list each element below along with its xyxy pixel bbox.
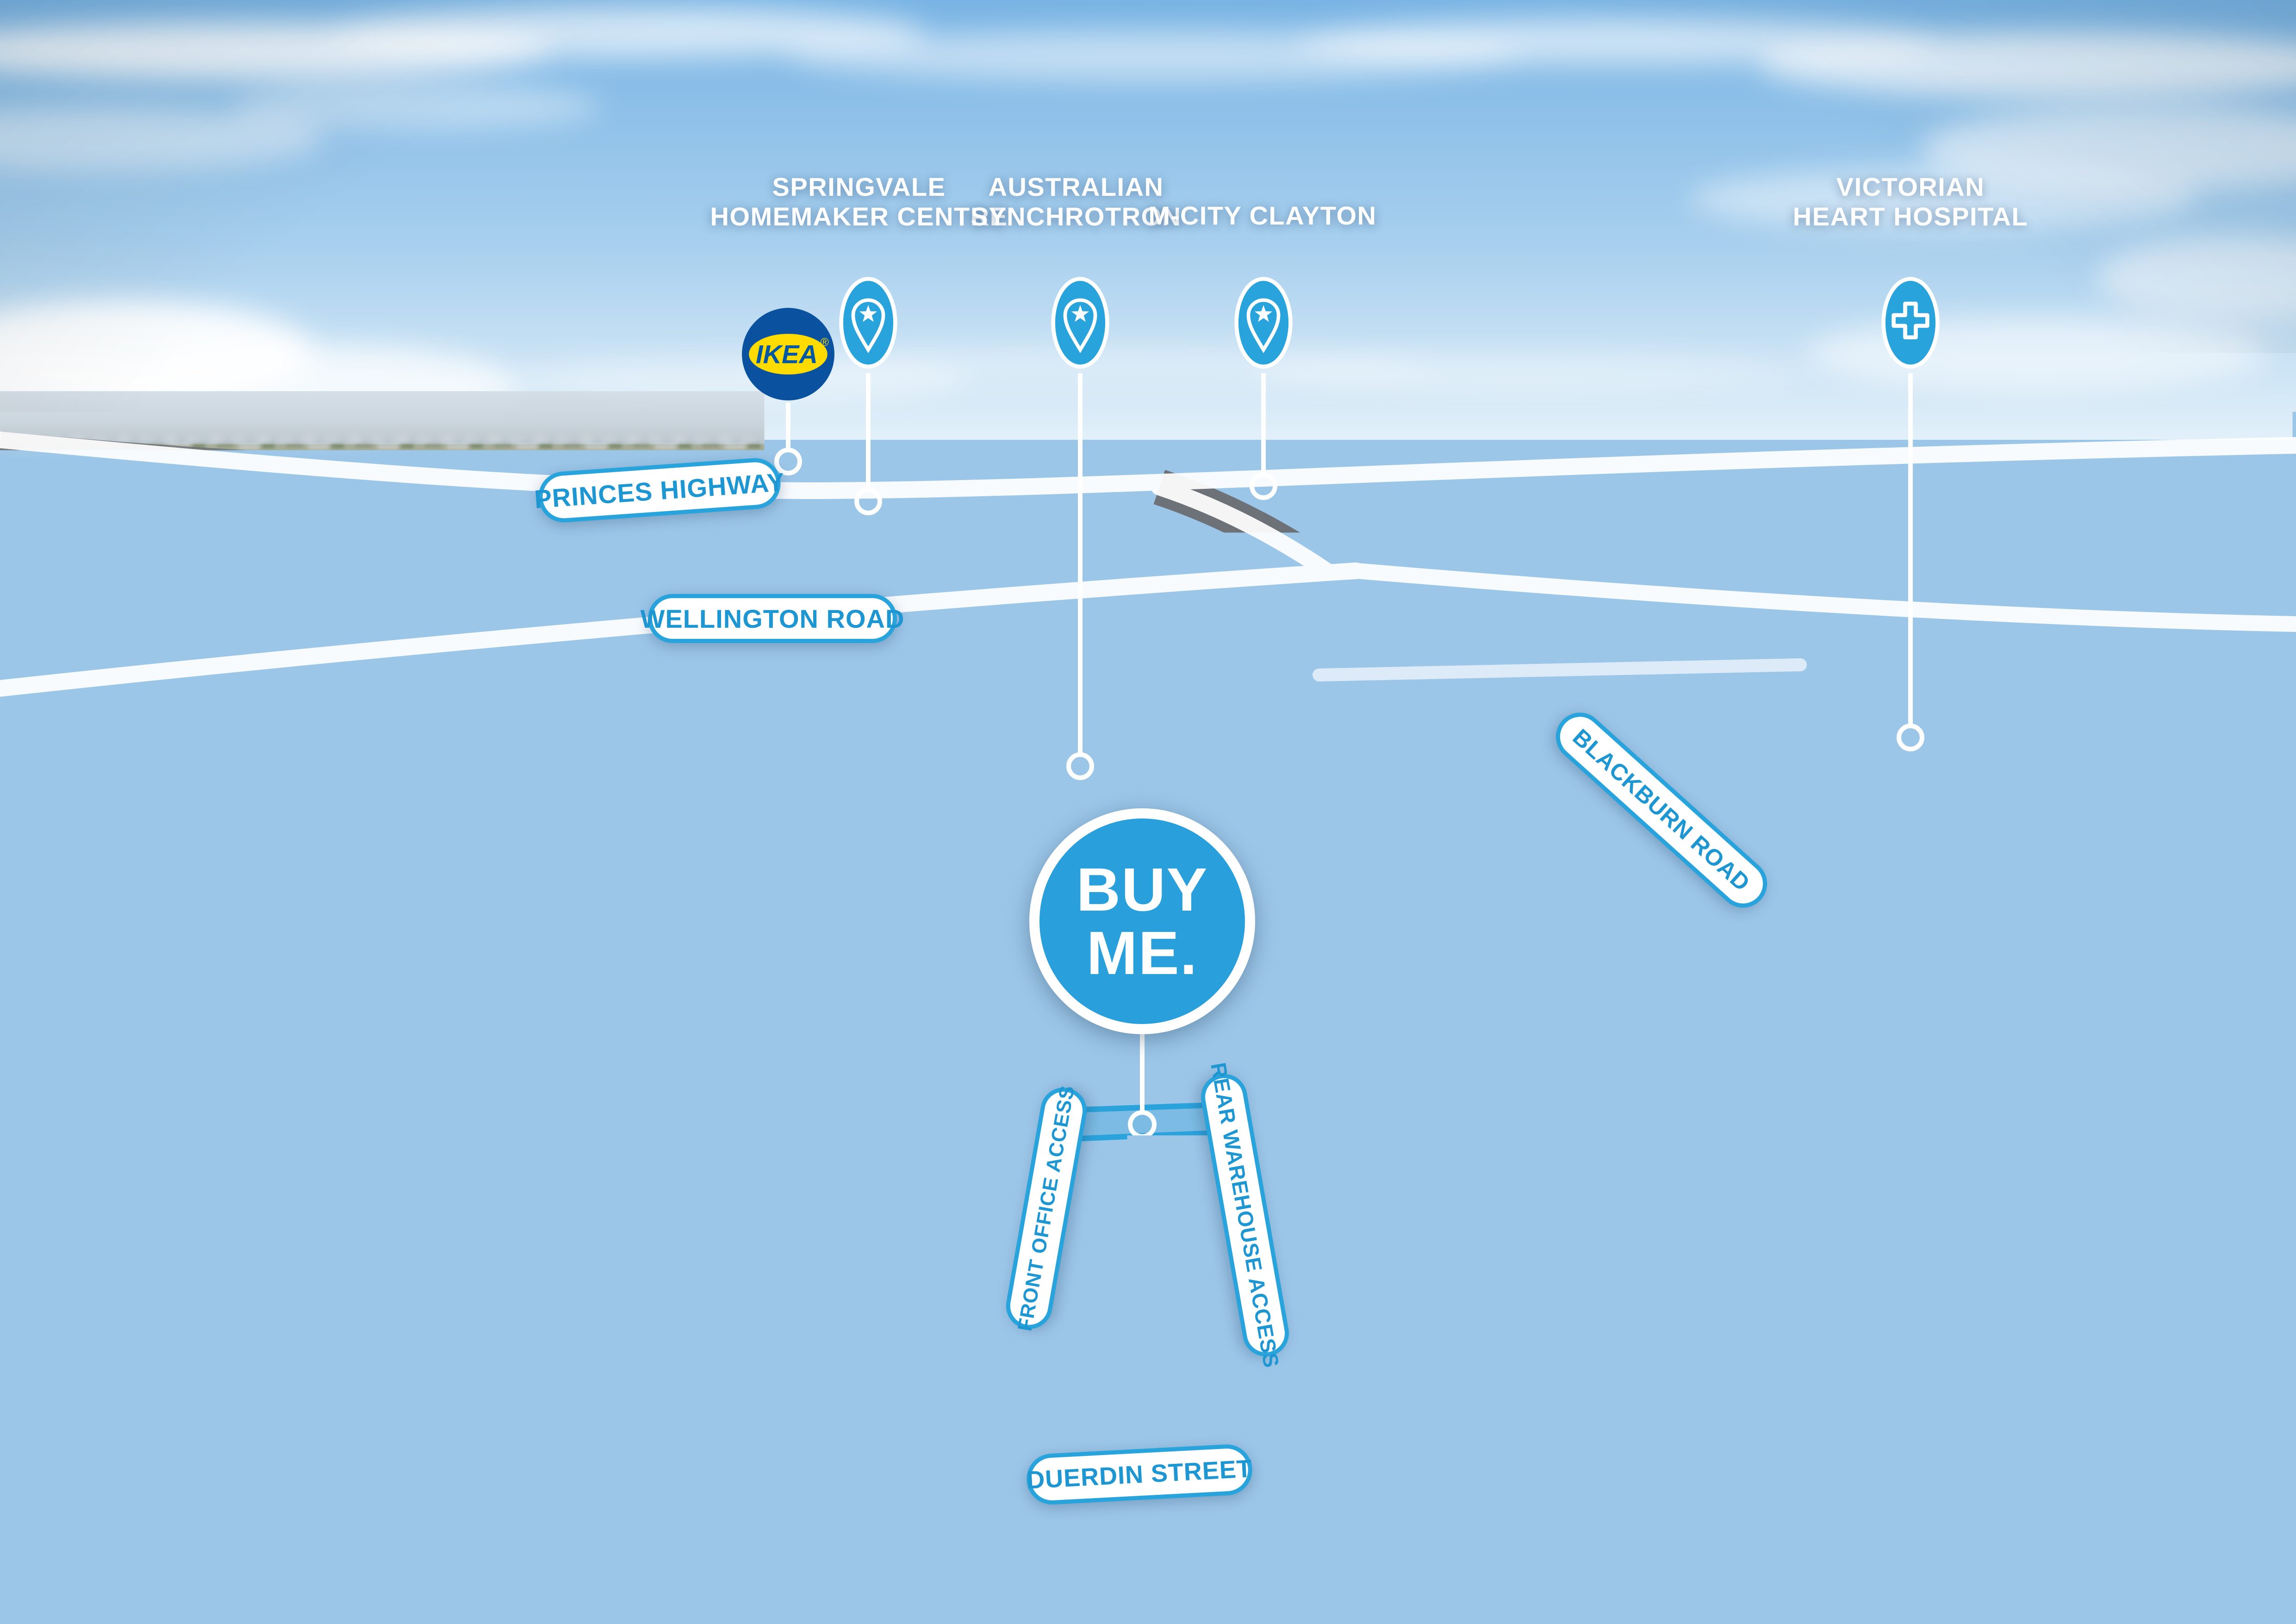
buy-me-line1: BUY (1076, 858, 1208, 921)
leader-endpoint-ring (1899, 726, 1922, 749)
leader-endpoint-ring (1069, 755, 1092, 778)
marker-label-line: SPRINGVALE (710, 172, 1008, 202)
road-label-text: WELLINGTON ROAD (641, 604, 905, 634)
ikea-logo-icon: IKEA ® (739, 305, 837, 403)
ikea-badge-text: IKEA (756, 340, 818, 369)
marker-label-line: VICTORIAN (1793, 172, 2028, 202)
marker-label-line: AUSTRALIAN (971, 172, 1181, 202)
road-line-secondary (1319, 665, 1800, 675)
hospital-pin (1879, 275, 1941, 374)
buy-me-line2: ME. (1087, 921, 1198, 985)
marker-label-springvale: SPRINGVALE HOMEMAKER CENTRE (710, 172, 1008, 231)
mcity-pin (1232, 275, 1294, 374)
ikea-registered-mark: ® (821, 336, 829, 349)
marker-label-mcity-clayton: M-CITY CLAYTON (1149, 201, 1377, 231)
medical-cross-pin-icon (1879, 275, 1941, 374)
buy-me-badge: BUY ME. (1029, 808, 1255, 1034)
star-pin-icon (1232, 275, 1294, 374)
road-line-duerdin (627, 1385, 2296, 1482)
road-line-wellington-east (1356, 571, 2296, 624)
star-pin-icon (837, 275, 899, 374)
road-label-text: PRINCES HIGHWAY (533, 467, 785, 514)
road-label-wellington-road: WELLINGTON ROAD (648, 594, 897, 643)
road-line-princes-highway (0, 440, 2296, 491)
marker-label-line: HEART HOSPITAL (1793, 202, 2028, 231)
ikea-logo-badge: IKEA ® (739, 305, 837, 403)
aerial-site-map: IKEA (0, 0, 2296, 1624)
road-label-text: DUERDIN STREET (1026, 1454, 1253, 1494)
springvale-pin (837, 275, 899, 374)
synchrotron-pin (1049, 275, 1111, 374)
star-pin-icon (1049, 275, 1111, 374)
marker-label-victorian-heart-hospital: VICTORIAN HEART HOSPITAL (1793, 172, 2028, 231)
marker-label-line: HOMEMAKER CENTRE (710, 202, 1008, 231)
marker-label-line: M-CITY CLAYTON (1149, 201, 1377, 231)
